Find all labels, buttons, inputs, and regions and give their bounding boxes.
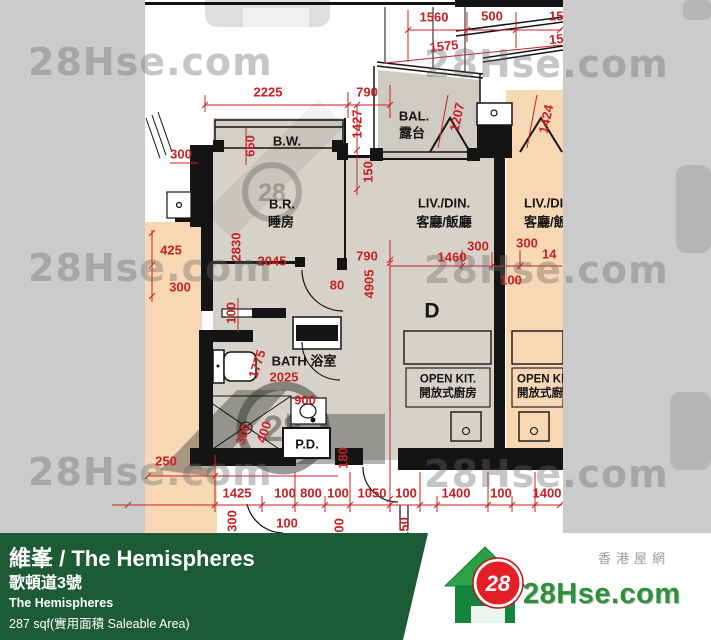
dimension-label: 15 [548,32,563,46]
dimension-label: 100 [274,487,296,500]
watermark-house-shape [670,392,711,470]
dimension-label: 80 [330,279,344,292]
dimension-label: 100 [327,487,349,500]
dimension-label: 100 [225,302,238,324]
dimension-label: 4905 [363,270,376,299]
dimension-label: 425 [160,244,182,257]
dimension-label: 790 [356,250,378,263]
dimension-label: 1560 [420,11,449,24]
dimension-label: 300 [170,148,192,161]
dimension-label: 1775 [246,348,267,380]
floorplan-image: 28 28 [0,0,711,640]
site-logo: 28 香港屋網 28Hse.com [440,538,705,633]
dimension-labels: 1560500151575152225790300650142712071424… [0,0,563,533]
dimension-label: 1400 [442,487,471,500]
logo-site-name: 28Hse.com [523,578,681,611]
project-area: 287 sqf(實用面積 Saleable Area) [9,613,190,632]
dimension-label: 150 [398,517,411,533]
dimension-label: 2045 [258,255,287,268]
dimension-label: 1427 [351,110,364,139]
dimension-label: 700 [333,518,346,533]
dimension-label: 400 [254,420,273,445]
dimension-label: 1424 [537,104,556,135]
dimension-label: 300 [233,422,252,447]
dimension-label: 1425 [223,487,252,500]
dimension-label: 2225 [254,86,283,99]
dimension-label: 14 [542,248,556,261]
dimension-label: 300 [169,281,191,294]
dimension-label: 2830 [230,233,243,262]
dimension-label: 100 [490,487,512,500]
dimension-label: 1575 [429,38,459,54]
logo-tagline: 香港屋網 [598,548,670,567]
dimension-label: 300 [467,240,489,253]
project-name-en: The Hemispheres [9,596,113,610]
dimension-label: 150 [362,161,375,183]
dimension-label: 100 [500,274,522,287]
project-address: 歌頓道3號 [9,569,82,593]
dimension-label: 1400 [533,487,562,500]
logo-badge: 28 [485,571,511,596]
dimension-label: 300 [226,510,239,532]
dimension-label: 650 [244,135,257,157]
dimension-label: 800 [300,487,322,500]
dimension-label: 250 [155,455,177,468]
dimension-label: 1460 [438,251,467,264]
dimension-label: 100 [395,487,417,500]
dimension-label: 500 [481,10,503,23]
dimension-label: 180 [337,447,350,469]
dimension-label: 900 [294,394,316,407]
dimension-label: 1207 [448,102,467,133]
watermark-house-shape [676,165,711,253]
dimension-label: 15 [549,10,563,23]
dimension-label: 790 [356,86,378,99]
dimension-label: 100 [276,517,298,530]
floor-plan: 28 28 [0,0,563,533]
dimension-label: 300 [516,237,538,250]
dimension-label: 2025 [270,371,299,384]
dimension-label: 1050 [358,487,387,500]
watermark-house-shape [683,0,711,20]
